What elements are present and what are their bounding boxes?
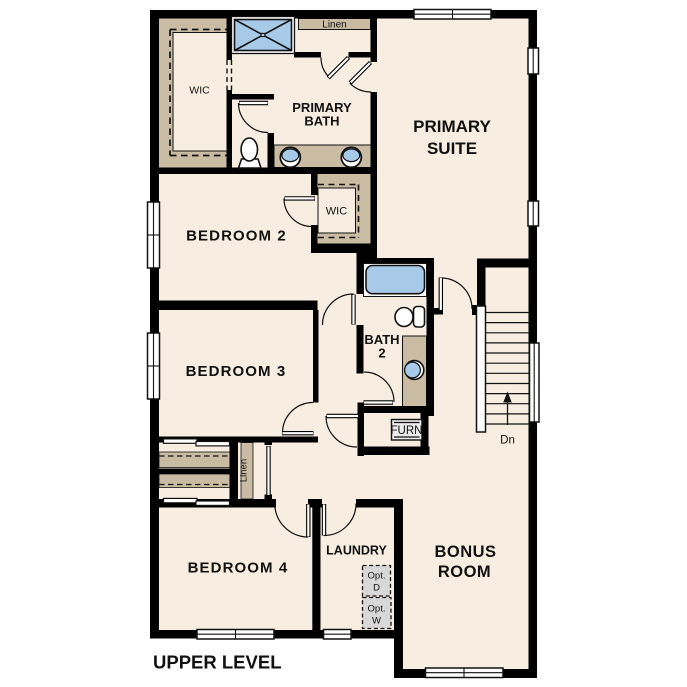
svg-text:W: W bbox=[372, 616, 381, 627]
svg-text:Dn: Dn bbox=[500, 435, 515, 447]
svg-text:ROOM: ROOM bbox=[438, 563, 491, 581]
svg-text:2: 2 bbox=[378, 346, 385, 361]
svg-text:BEDROOM 4: BEDROOM 4 bbox=[188, 560, 289, 577]
svg-text:SUITE: SUITE bbox=[427, 139, 477, 158]
svg-text:BEDROOM 3: BEDROOM 3 bbox=[186, 363, 287, 380]
svg-text:BEDROOM 2: BEDROOM 2 bbox=[186, 228, 287, 245]
svg-text:WIC: WIC bbox=[326, 206, 347, 218]
svg-text:D: D bbox=[373, 583, 380, 594]
svg-text:Opt.: Opt. bbox=[368, 604, 386, 615]
svg-text:Opt.: Opt. bbox=[368, 571, 386, 582]
svg-text:WIC: WIC bbox=[189, 85, 210, 97]
svg-text:UPPER LEVEL: UPPER LEVEL bbox=[153, 652, 282, 673]
svg-text:LAUNDRY: LAUNDRY bbox=[326, 544, 387, 558]
svg-text:BONUS: BONUS bbox=[434, 543, 496, 561]
svg-text:FURN: FURN bbox=[391, 425, 423, 437]
svg-text:BATH: BATH bbox=[304, 114, 339, 129]
svg-text:PRIMARY: PRIMARY bbox=[413, 117, 491, 136]
svg-text:Linen: Linen bbox=[322, 20, 346, 31]
svg-text:Linen: Linen bbox=[239, 459, 250, 482]
